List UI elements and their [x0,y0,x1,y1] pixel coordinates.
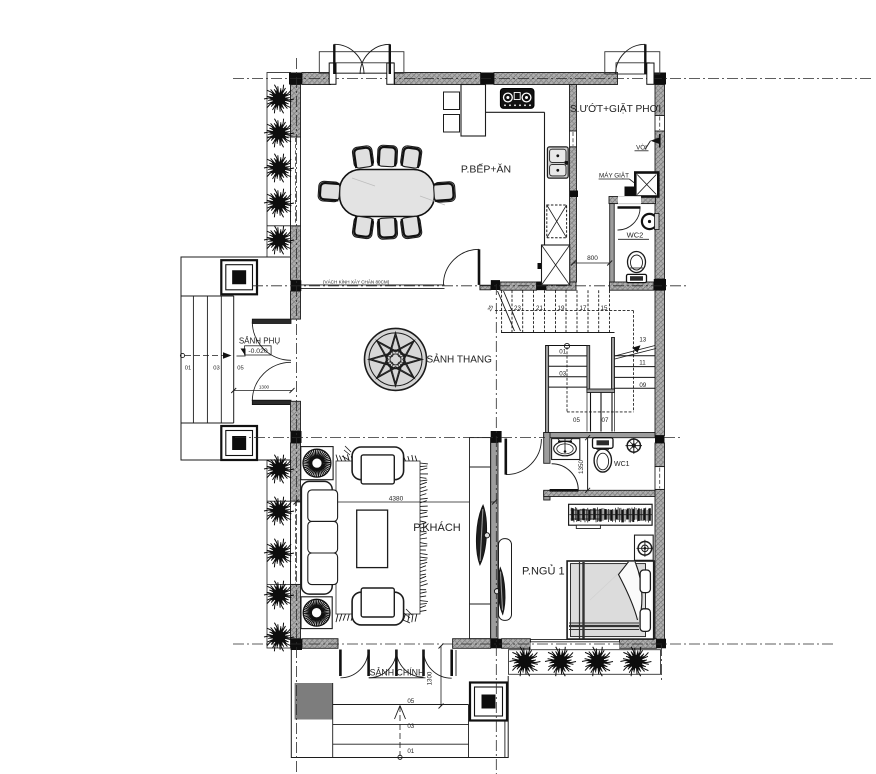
svg-text:1300: 1300 [259,385,270,390]
svg-text:05: 05 [573,417,580,424]
svg-text:800: 800 [587,255,598,262]
svg-text:05: 05 [237,366,243,372]
svg-text:(VÁCH KÍNH XÂY CHÂN 80CM): (VÁCH KÍNH XÂY CHÂN 80CM) [323,278,390,284]
svg-text:03: 03 [559,370,566,377]
svg-text:WC2: WC2 [627,230,644,239]
svg-text:05: 05 [407,698,414,705]
svg-text:07: 07 [602,417,609,424]
svg-text:11: 11 [639,360,646,367]
svg-text:P.KHÁCH: P.KHÁCH [413,521,461,534]
svg-text:09: 09 [639,382,646,389]
svg-text:01: 01 [559,348,566,355]
svg-text:-0.020: -0.020 [248,348,267,355]
svg-text:S.ƯỚT+GIẶT PHƠI: S.ƯỚT+GIẶT PHƠI [570,102,661,115]
svg-text:MÁY GIẶT: MÁY GIẶT [599,170,629,179]
svg-text:01: 01 [185,366,191,372]
svg-text:1350: 1350 [578,460,585,475]
svg-text:03: 03 [407,723,414,730]
svg-text:13: 13 [639,336,646,343]
svg-text:03: 03 [213,366,219,372]
svg-text:4380: 4380 [389,495,404,502]
svg-text:VÒI: VÒI [636,142,647,151]
svg-text:SẢNH THANG: SẢNH THANG [427,353,493,366]
svg-text:SẢNH CHÍNH: SẢNH CHÍNH [370,666,425,677]
svg-text:P.BẾP+ĂN: P.BẾP+ĂN [461,163,511,176]
svg-text:01: 01 [407,748,414,755]
svg-text:WC1: WC1 [614,461,630,468]
svg-text:1300: 1300 [427,671,434,685]
svg-text:P.NGỦ 1: P.NGỦ 1 [522,565,565,578]
